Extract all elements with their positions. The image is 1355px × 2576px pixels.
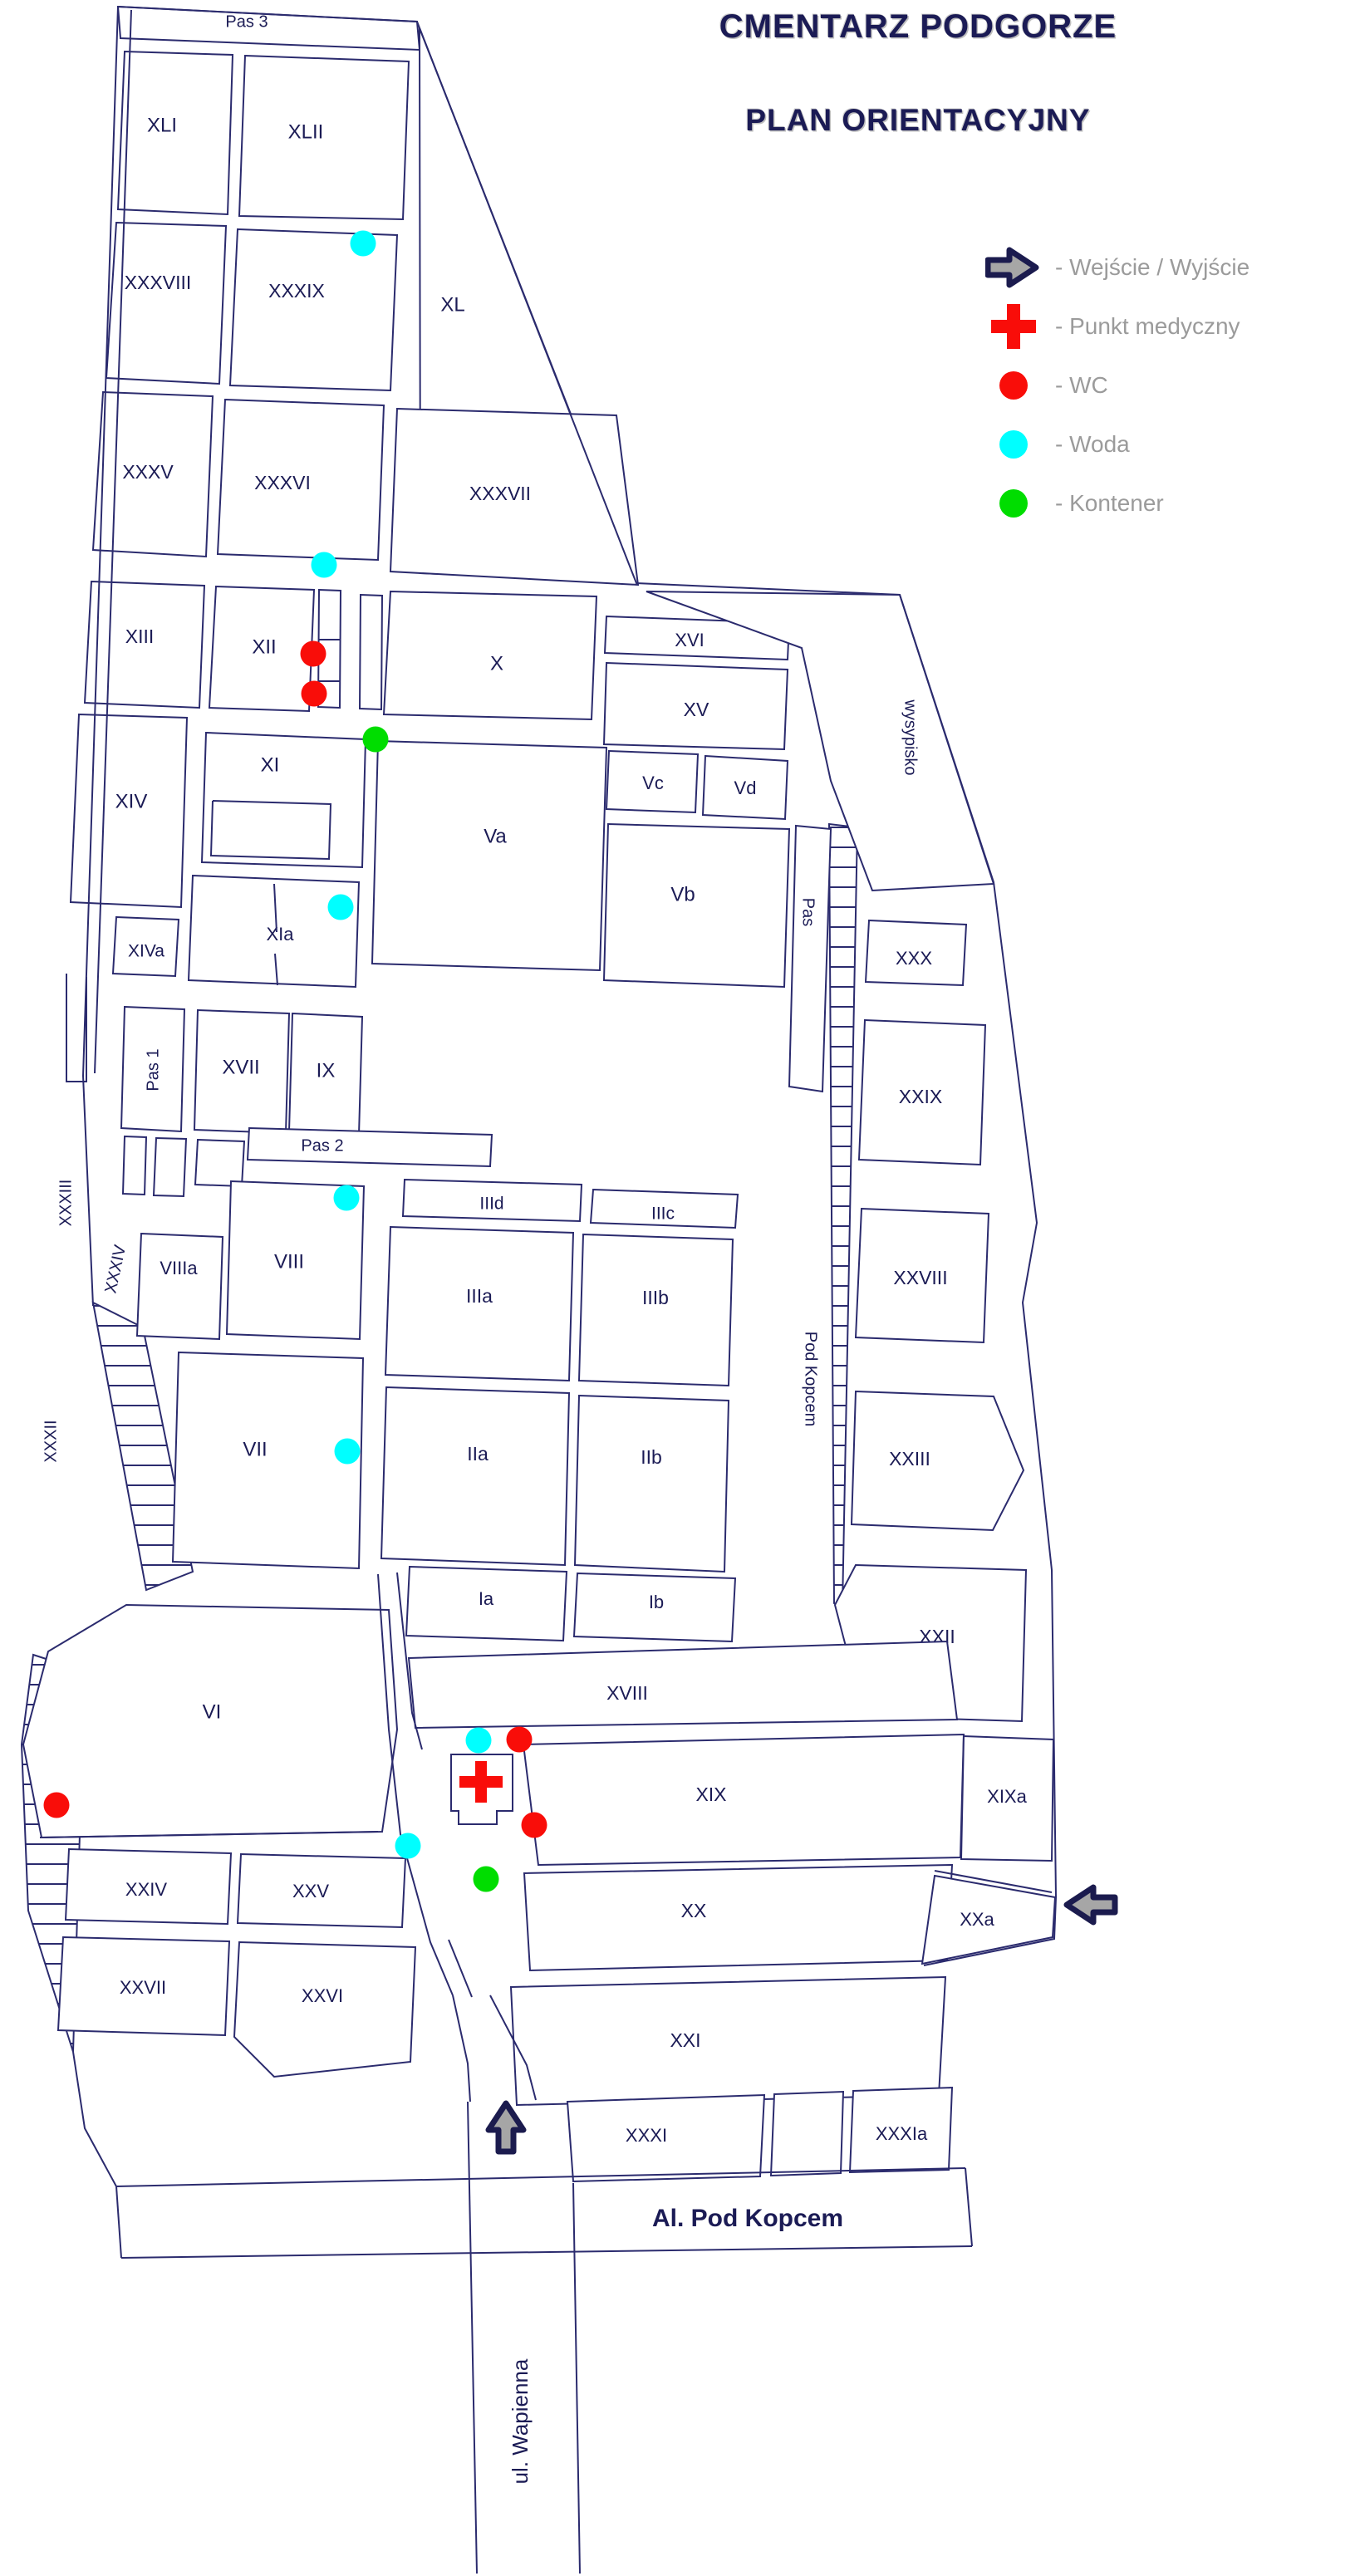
section-label-vd: Vd — [734, 778, 757, 798]
section-xix — [523, 1735, 964, 1865]
section-area — [154, 1138, 186, 1196]
woda-dot — [351, 231, 376, 257]
section-label-ia: Ia — [479, 1588, 494, 1609]
section-label-ix: IX — [317, 1059, 336, 1082]
section-label-xl: XL — [440, 293, 464, 316]
street-label-xxxii: XXXII — [42, 1420, 60, 1462]
medical-cross-icon — [475, 1761, 487, 1803]
section-area — [248, 1128, 492, 1166]
woda-dot — [335, 1439, 361, 1465]
section-label-iia: IIa — [467, 1443, 488, 1465]
section-label-iiia: IIIa — [466, 1285, 493, 1307]
section-label-xxxvi: XXXVI — [254, 472, 311, 493]
wc-dot — [44, 1793, 70, 1818]
street-label-ul-wapienna: ul. Wapienna — [508, 2358, 533, 2484]
section-label-xv: XV — [684, 699, 709, 720]
map-line — [468, 2102, 477, 2574]
kontener-dot — [474, 1867, 499, 1892]
woda-dot — [466, 1728, 492, 1754]
section-label-ib: Ib — [649, 1592, 664, 1612]
section-vii — [173, 1352, 363, 1568]
section-label-xxxv: XXXV — [122, 461, 174, 483]
street-label-al-pod-kopcem: Al. Pod Kopcem — [652, 2205, 843, 2232]
section-label-xiii: XIII — [125, 626, 155, 647]
section-iiib — [579, 1234, 733, 1386]
map-line — [121, 2246, 972, 2258]
section-label-xiv: XIV — [115, 790, 148, 812]
woda-dot — [312, 552, 337, 578]
section-label-xxxia: XXXIa — [876, 2123, 928, 2144]
section-xx — [524, 1865, 952, 1970]
street-label-pas-2: Pas 2 — [301, 1136, 343, 1155]
section-iib — [575, 1396, 729, 1572]
section-label-va: Va — [484, 825, 507, 847]
woda-dot — [395, 1833, 421, 1859]
wc-dot — [522, 1813, 547, 1838]
section-label-viii: VIII — [274, 1250, 304, 1273]
section-area — [123, 1136, 146, 1195]
section-label-xxix: XXIX — [899, 1086, 942, 1107]
section-area — [789, 826, 831, 1092]
street-label-pas: Pas — [799, 898, 817, 926]
section-label-xlii: XLII — [288, 120, 324, 143]
woda-dot — [334, 1185, 360, 1211]
section-label-xviii: XVIII — [606, 1682, 648, 1704]
section-label-xxi: XXI — [670, 2029, 700, 2051]
section-xxxix — [230, 229, 397, 390]
woda-dot — [328, 895, 354, 920]
kontener-dot — [363, 727, 389, 753]
street-label-pas-3: Pas 3 — [225, 12, 268, 31]
street-label-pas-1: Pas 1 — [144, 1048, 162, 1091]
map-line — [965, 2168, 972, 2246]
section-label-xxv: XXV — [292, 1881, 329, 1901]
section-label-xxviii: XXVIII — [893, 1267, 947, 1288]
section-label-xix: XIX — [695, 1784, 726, 1805]
section-xxi — [511, 1977, 945, 2105]
section-label-xvii: XVII — [222, 1056, 259, 1078]
street-label-xxxiv: XXXIV — [101, 1243, 130, 1295]
map-line — [453, 1995, 470, 2102]
section-label-xx: XX — [681, 1900, 707, 1921]
section-viiia — [137, 1234, 223, 1339]
street-label-pod-kopcem: Pod Kopcem — [802, 1332, 820, 1427]
section-label-xi: XI — [261, 753, 280, 776]
section-label-xxa: XXa — [960, 1909, 994, 1930]
section-label-xxxvii: XXXVII — [469, 483, 531, 504]
section-label-xxx: XXX — [896, 948, 932, 969]
section-area — [771, 2092, 843, 2176]
section-vb — [604, 824, 789, 987]
section-xxiii — [852, 1391, 1024, 1530]
section-label-xxiii: XXIII — [889, 1448, 930, 1470]
street-label-wysypisko: wysypisko — [901, 699, 920, 775]
section-label-xli: XLI — [147, 114, 177, 136]
section-xlii — [239, 56, 409, 219]
section-label-iib: IIb — [641, 1446, 662, 1468]
map-line — [116, 2186, 121, 2258]
section-area — [195, 1140, 244, 1186]
map-line — [573, 2183, 580, 2574]
section-area — [360, 595, 382, 709]
section-label-iiid: IIId — [479, 1195, 503, 1214]
section-iia — [381, 1387, 569, 1565]
street-label-xxxiii: XXXIII — [56, 1180, 75, 1227]
section-label-xxxviii: XXXVIII — [125, 272, 192, 293]
map-root: XLIXLIIXXXVIIIXXXIXXLXXXVXXXVIXXXVIIXIII… — [22, 7, 1115, 2574]
section-label-x: X — [490, 652, 503, 675]
wc-dot — [301, 641, 326, 667]
section-xxvi — [234, 1942, 415, 2077]
map-line — [116, 2168, 965, 2186]
section-xxxviii — [106, 223, 226, 384]
section-label-viiia: VIIIa — [160, 1258, 198, 1278]
section-xi — [202, 733, 366, 867]
section-label-xiva: XIVa — [128, 942, 164, 961]
section-label-xxiv: XXIV — [125, 1879, 167, 1900]
section-xviii — [409, 1641, 957, 1728]
section-label-xii: XII — [252, 635, 276, 658]
section-label-vii: VII — [243, 1438, 267, 1460]
section-label-iiib: IIIb — [642, 1287, 669, 1308]
section-label-xixa: XIXa — [987, 1786, 1027, 1807]
map-line — [73, 2052, 116, 2186]
entrance-arrow-up — [488, 2103, 523, 2152]
section-label-xia: XIa — [266, 924, 294, 945]
section-label-vc: Vc — [642, 773, 664, 793]
cemetery-plan-page: CMENTARZ PODGORZE PLAN ORIENTACYJNY - We… — [0, 0, 1355, 2576]
section-label-iiic: IIIc — [651, 1205, 675, 1224]
cemetery-map: XLIXLIIXXXVIIIXXXIXXLXXXVXXXVIXXXVIIXIII… — [0, 0, 1355, 2576]
section-label-xxxix: XXXIX — [268, 280, 325, 302]
entrance-arrow-left — [1067, 1887, 1115, 1922]
section-label-vb: Vb — [670, 883, 695, 905]
section-area — [118, 7, 420, 50]
wc-dot — [507, 1727, 533, 1753]
wc-dot — [302, 681, 327, 707]
section-label-vi: VI — [203, 1700, 222, 1723]
section-label-xxxi: XXXI — [626, 2125, 667, 2146]
section-label-xxvi: XXVI — [302, 1985, 343, 2006]
section-label-xxvii: XXVII — [120, 1977, 166, 1998]
section-va — [372, 741, 606, 970]
map-line — [449, 1940, 472, 1997]
section-label-xvi: XVI — [675, 630, 704, 650]
